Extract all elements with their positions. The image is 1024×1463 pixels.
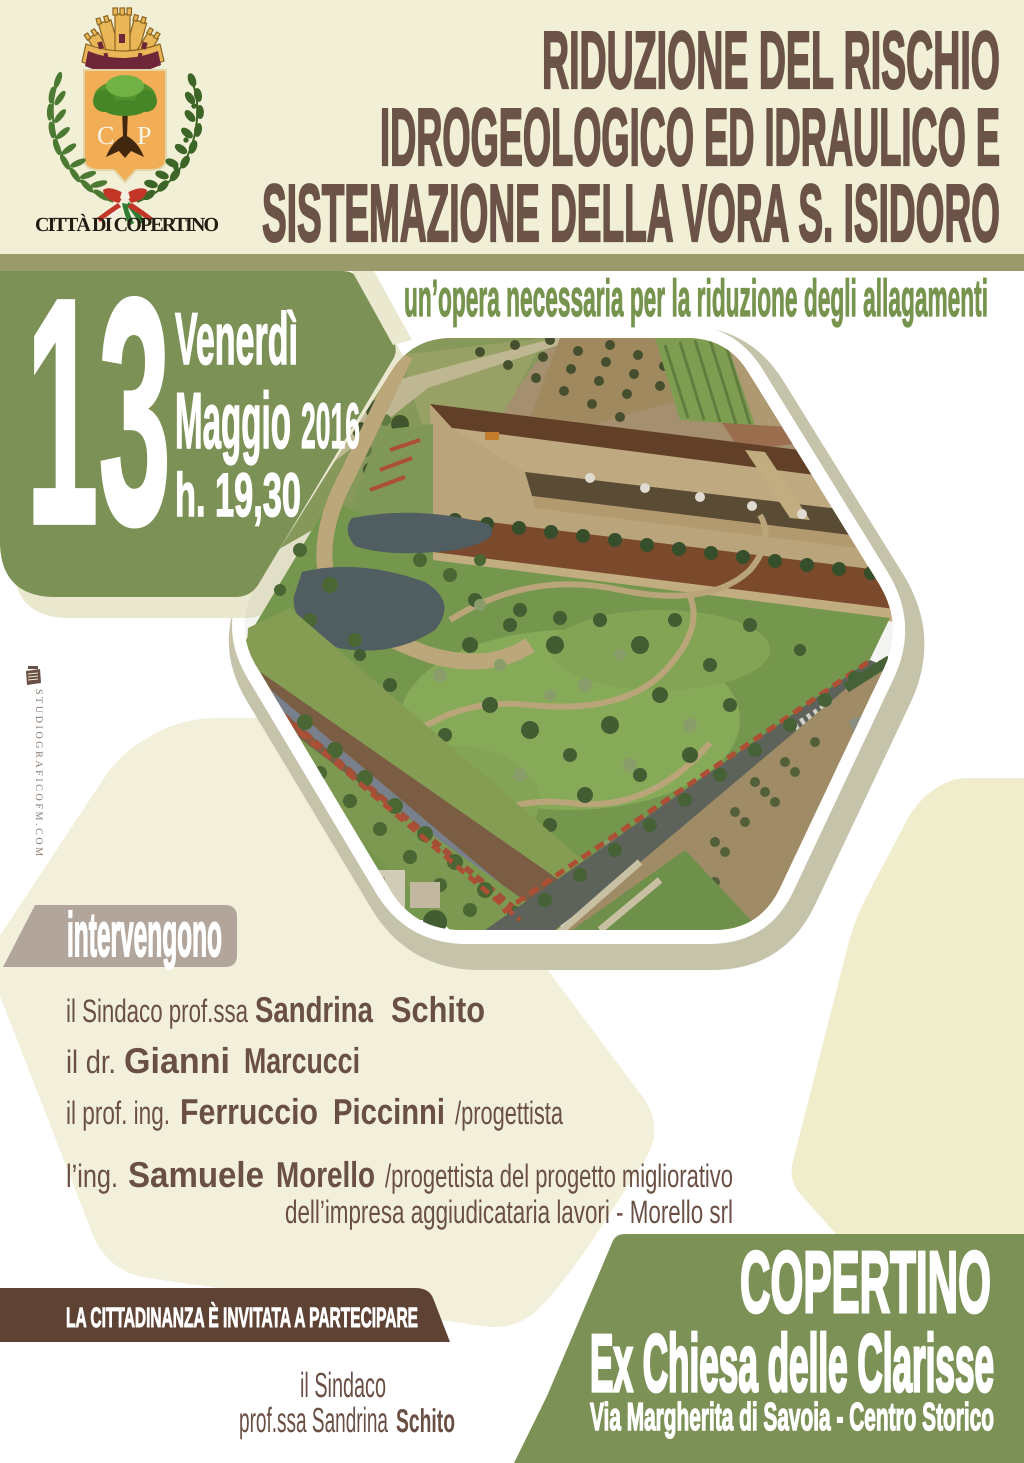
svg-text:/progettista: /progettista xyxy=(455,1096,564,1132)
svg-text:Maggio: Maggio xyxy=(175,378,291,467)
svg-text:intervengono: intervengono xyxy=(67,902,222,971)
svg-text:il Sindaco prof.ssa: il Sindaco prof.ssa xyxy=(66,994,249,1030)
svg-text:P: P xyxy=(137,121,151,150)
svg-text:STUDIOGRAFICOFM.COM: STUDIOGRAFICOFM.COM xyxy=(33,689,44,859)
svg-text:Samuele: Samuele xyxy=(128,1154,264,1195)
svg-text:Marcucci: Marcucci xyxy=(244,1040,360,1081)
svg-text:Via Margherita di Savoia - Cen: Via Margherita di Savoia - Centro Storic… xyxy=(590,1394,994,1439)
svg-text:Morello: Morello xyxy=(276,1154,375,1195)
svg-text:Sandrina: Sandrina xyxy=(255,989,374,1030)
svg-text:il dr.: il dr. xyxy=(66,1045,116,1081)
svg-text:/progettista del progetto migl: /progettista del progetto migliorativo xyxy=(385,1159,733,1195)
svg-text:Ferruccio: Ferruccio xyxy=(180,1091,318,1132)
svg-text:Gianni: Gianni xyxy=(124,1040,230,1081)
svg-text:2016: 2016 xyxy=(301,391,360,463)
svg-text:il prof. ing.: il prof. ing. xyxy=(66,1096,170,1132)
svg-text:COPERTINO: COPERTINO xyxy=(740,1234,991,1332)
svg-text:Venerdì: Venerdì xyxy=(175,300,298,381)
svg-text:Schito: Schito xyxy=(391,989,485,1030)
svg-text:h. 19,30: h. 19,30 xyxy=(175,461,301,530)
svg-text:dell’impresa aggiudicataria la: dell’impresa aggiudicataria lavori - Mor… xyxy=(285,1195,733,1231)
svg-text:13: 13 xyxy=(26,231,171,592)
svg-text:prof.ssa Sandrina: prof.ssa Sandrina xyxy=(239,1401,388,1440)
svg-text:LA CITTADINANZA È INVITATA A: LA CITTADINANZA È INVITATA A PARTECIPARE xyxy=(66,1302,418,1334)
svg-text:il Sindaco: il Sindaco xyxy=(300,1366,386,1405)
svg-text:un’opera necessaria per la rid: un’opera necessaria per la riduzione deg… xyxy=(404,268,988,327)
svg-text:CITTÀ DI COPERTINO: CITTÀ DI COPERTINO xyxy=(35,213,219,236)
svg-text:SISTEMAZIONE DELLA VORA S. ISI: SISTEMAZIONE DELLA VORA S. ISIDORO xyxy=(262,167,1000,258)
svg-text:Schito: Schito xyxy=(396,1402,455,1439)
svg-text:C: C xyxy=(97,121,114,150)
svg-text:l’ing.: l’ing. xyxy=(66,1159,118,1195)
svg-text:Piccinni: Piccinni xyxy=(333,1091,445,1132)
